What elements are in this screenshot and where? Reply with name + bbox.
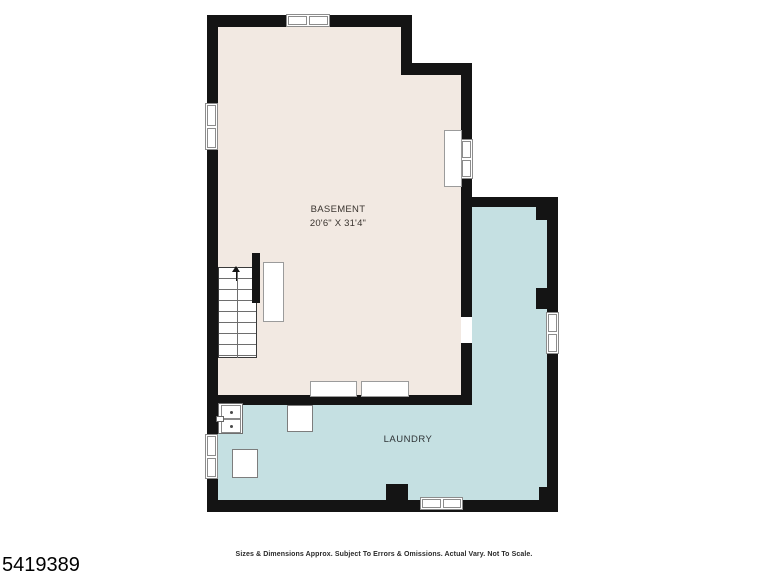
drain-dot bbox=[230, 411, 233, 414]
window-pane bbox=[548, 334, 557, 352]
room-label-laundry: LAUNDRY bbox=[358, 434, 458, 445]
up-arrow-icon bbox=[236, 272, 237, 281]
sink-basin bbox=[221, 419, 241, 433]
laundry-floor-right-arm bbox=[472, 207, 547, 500]
faucet-knob bbox=[216, 416, 224, 422]
window-icon bbox=[420, 497, 463, 510]
listing-id: 5419389 bbox=[2, 554, 80, 577]
wall-laundry-top bbox=[461, 197, 558, 207]
window-pane bbox=[548, 314, 557, 332]
laundry-sink-icon bbox=[218, 403, 243, 434]
door-opening bbox=[461, 317, 472, 343]
window-pane bbox=[288, 16, 307, 25]
window-pane bbox=[207, 436, 216, 456]
window-pane bbox=[462, 160, 471, 177]
window-pane bbox=[443, 499, 462, 508]
cabinet bbox=[310, 381, 357, 397]
window-pane bbox=[207, 128, 216, 149]
sink-basin bbox=[221, 405, 241, 419]
window-icon bbox=[286, 14, 330, 27]
wall-stair-side bbox=[252, 253, 260, 303]
wall-basement-right-upper bbox=[461, 63, 472, 317]
washer-icon bbox=[287, 405, 313, 432]
window-pane bbox=[207, 458, 216, 478]
drain-dot bbox=[230, 425, 233, 428]
dryer-icon bbox=[232, 449, 258, 478]
staircase-center-rail bbox=[237, 267, 238, 358]
window-pane bbox=[309, 16, 328, 25]
room-label-basement: BASEMENT 20'6" X 31'4" bbox=[267, 204, 409, 229]
up-arrow-icon bbox=[232, 266, 240, 272]
room-dimensions: 20'6" X 31'4" bbox=[267, 218, 409, 229]
window-icon bbox=[205, 103, 218, 150]
basement-floor-upper bbox=[218, 27, 401, 75]
window-icon bbox=[205, 434, 218, 479]
wall-exterior-bottom bbox=[207, 500, 558, 512]
room-name: LAUNDRY bbox=[358, 434, 458, 445]
cabinet bbox=[361, 381, 409, 397]
chimney-block bbox=[536, 288, 547, 309]
wall-step-bottom-right bbox=[539, 487, 547, 500]
floorplan: BASEMENT 20'6" X 31'4" LAUNDRY bbox=[0, 0, 768, 576]
room-name: BASEMENT bbox=[267, 204, 409, 215]
window-pane bbox=[462, 141, 471, 158]
wall-pier-bottom bbox=[386, 484, 408, 500]
wall-laundry-right bbox=[547, 197, 558, 512]
window-icon bbox=[546, 312, 559, 354]
window-pane bbox=[207, 105, 216, 126]
disclaimer-text: Sizes & Dimensions Approx. Subject To Er… bbox=[0, 551, 768, 558]
built-in-unit bbox=[444, 130, 462, 187]
window-pane bbox=[422, 499, 441, 508]
wall-notch-laundry-corner bbox=[536, 207, 547, 220]
stair-partition bbox=[263, 262, 284, 322]
